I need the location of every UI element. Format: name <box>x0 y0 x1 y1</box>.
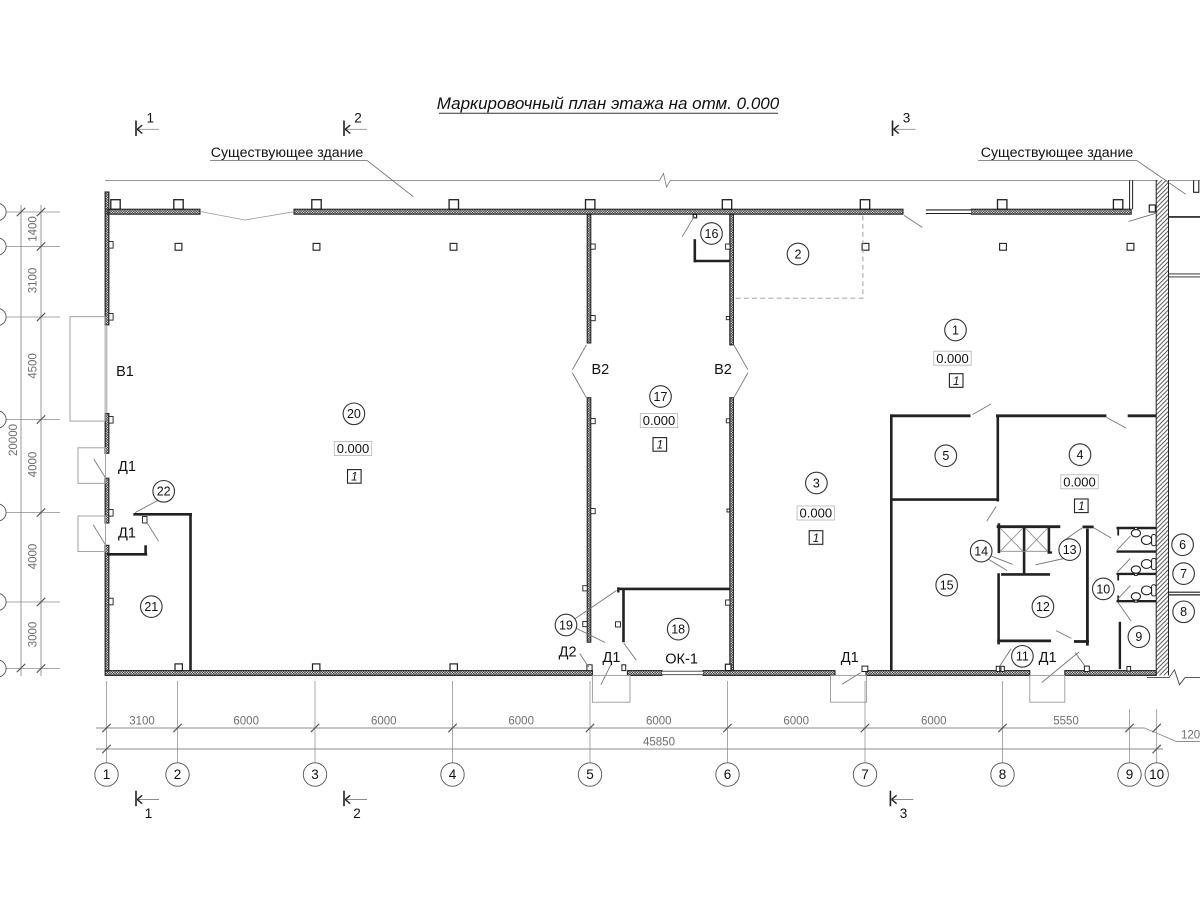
svg-text:4: 4 <box>449 767 457 782</box>
svg-text:13: 13 <box>1063 543 1077 557</box>
svg-text:Д1: Д1 <box>841 650 859 666</box>
svg-text:3100: 3100 <box>129 715 155 727</box>
svg-text:6000: 6000 <box>646 715 672 727</box>
svg-text:3: 3 <box>813 476 820 490</box>
svg-text:1: 1 <box>657 440 663 452</box>
svg-text:17: 17 <box>654 390 668 404</box>
svg-text:4500: 4500 <box>28 353 40 379</box>
svg-text:1: 1 <box>146 111 154 126</box>
svg-text:3000: 3000 <box>28 622 40 648</box>
svg-text:2: 2 <box>354 111 362 126</box>
svg-text:В2: В2 <box>714 362 732 378</box>
svg-text:2: 2 <box>174 767 182 782</box>
svg-text:18: 18 <box>671 623 685 637</box>
svg-text:1: 1 <box>952 323 959 337</box>
svg-text:9: 9 <box>1126 767 1134 782</box>
svg-text:22: 22 <box>157 485 171 499</box>
svg-text:10: 10 <box>1149 767 1164 782</box>
svg-text:4000: 4000 <box>28 544 40 570</box>
svg-text:14: 14 <box>974 545 988 559</box>
svg-text:Маркировочный план этажа на от: Маркировочный план этажа на отм. 0.000 <box>437 94 780 113</box>
svg-text:Существующее здание: Существующее здание <box>981 145 1134 161</box>
svg-text:1200: 1200 <box>1181 730 1200 742</box>
svg-text:4: 4 <box>1077 448 1084 462</box>
svg-text:16: 16 <box>705 227 719 241</box>
svg-text:3: 3 <box>900 806 908 821</box>
svg-text:6: 6 <box>1179 538 1186 552</box>
svg-text:8: 8 <box>999 767 1007 782</box>
svg-text:5: 5 <box>942 449 949 463</box>
svg-text:5: 5 <box>586 767 594 782</box>
svg-text:7: 7 <box>1180 567 1187 581</box>
svg-text:Д1: Д1 <box>603 650 621 666</box>
svg-text:0.000: 0.000 <box>1063 474 1096 489</box>
svg-text:5550: 5550 <box>1053 715 1079 727</box>
svg-text:Д1: Д1 <box>118 459 136 475</box>
svg-text:1: 1 <box>953 376 959 388</box>
svg-text:ОК-1: ОК-1 <box>665 651 698 667</box>
svg-text:6000: 6000 <box>371 715 397 727</box>
svg-text:3: 3 <box>903 111 911 126</box>
svg-text:4000: 4000 <box>28 452 40 478</box>
svg-text:В1: В1 <box>116 364 134 380</box>
svg-text:6000: 6000 <box>508 715 534 727</box>
svg-text:Д2: Д2 <box>559 644 577 660</box>
svg-text:15: 15 <box>940 579 954 593</box>
svg-text:7: 7 <box>861 767 869 782</box>
svg-text:11: 11 <box>1016 650 1029 664</box>
svg-text:3100: 3100 <box>28 268 40 294</box>
svg-text:1: 1 <box>103 767 111 782</box>
svg-text:0.000: 0.000 <box>643 413 676 428</box>
svg-text:21: 21 <box>144 600 158 614</box>
svg-text:12: 12 <box>1036 600 1050 614</box>
svg-text:6000: 6000 <box>233 715 259 727</box>
svg-text:1: 1 <box>813 533 819 545</box>
svg-text:3: 3 <box>311 767 319 782</box>
svg-text:1: 1 <box>1078 501 1084 513</box>
svg-text:0.000: 0.000 <box>337 441 370 456</box>
svg-text:9: 9 <box>1135 630 1142 644</box>
svg-text:Д1: Д1 <box>1039 650 1057 666</box>
svg-text:20000: 20000 <box>8 424 20 456</box>
svg-text:8: 8 <box>1180 605 1187 619</box>
svg-text:0.000: 0.000 <box>936 351 969 366</box>
svg-text:В2: В2 <box>592 362 610 378</box>
svg-text:2: 2 <box>795 247 802 261</box>
svg-text:6: 6 <box>724 767 732 782</box>
svg-text:1400: 1400 <box>28 216 40 242</box>
svg-text:6000: 6000 <box>921 715 947 727</box>
svg-text:1: 1 <box>351 472 357 484</box>
svg-text:2: 2 <box>353 806 361 821</box>
svg-text:Д1: Д1 <box>118 526 136 542</box>
svg-text:19: 19 <box>559 618 573 632</box>
svg-text:6000: 6000 <box>783 715 809 727</box>
svg-text:20: 20 <box>347 407 361 421</box>
svg-text:45850: 45850 <box>643 736 675 748</box>
svg-text:Существующее здание: Существующее здание <box>211 145 364 161</box>
svg-text:0.000: 0.000 <box>800 506 833 521</box>
svg-text:1: 1 <box>145 806 153 821</box>
svg-text:10: 10 <box>1096 582 1110 596</box>
